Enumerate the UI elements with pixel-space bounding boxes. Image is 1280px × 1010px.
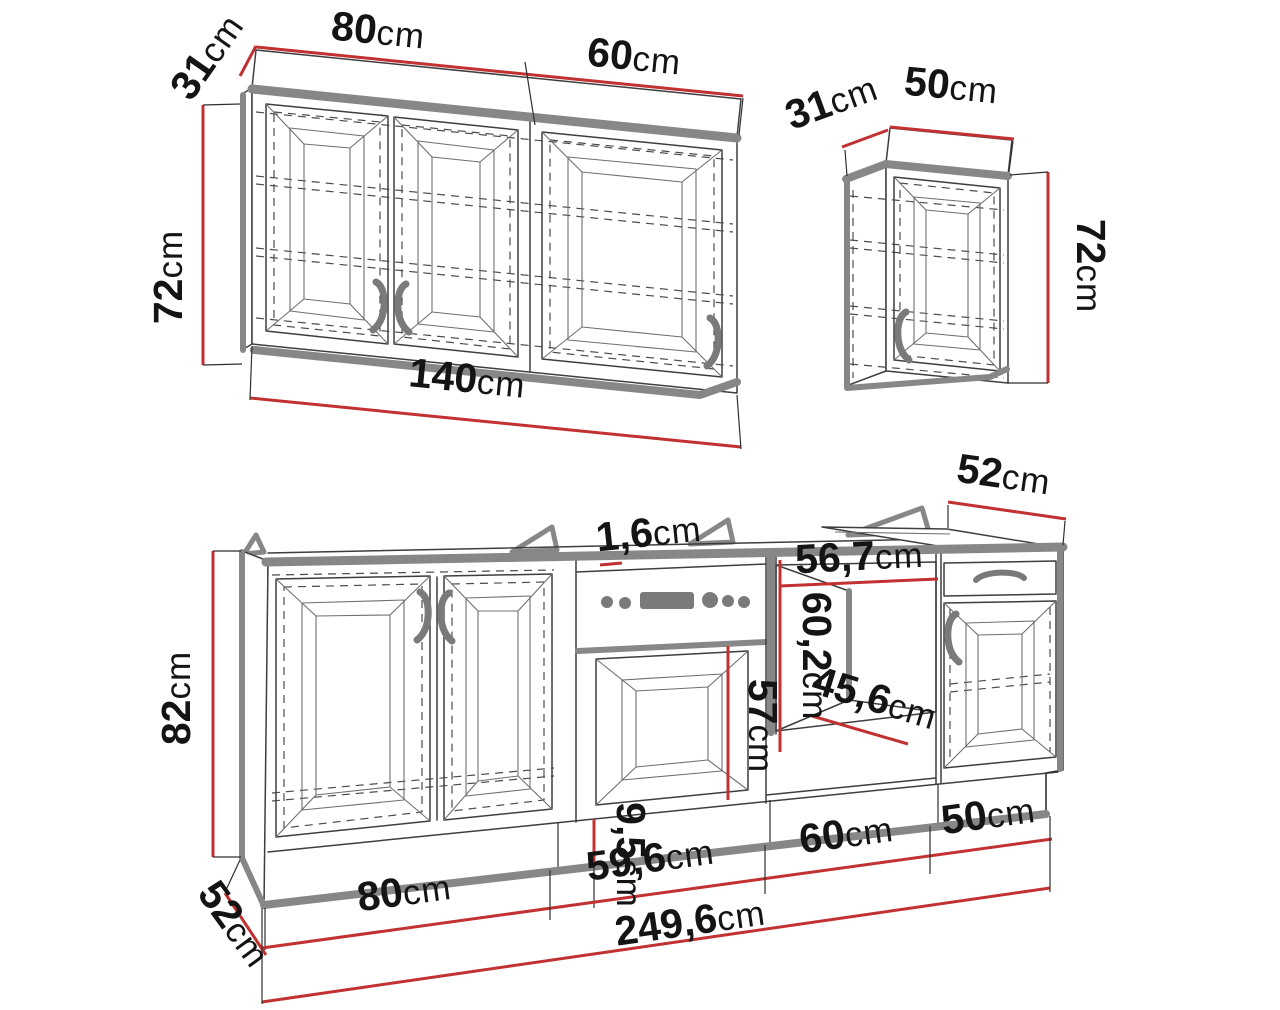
wall-cabinet-right: 31cm 50cm 72cm (779, 58, 1114, 388)
dim-line-depth (842, 130, 888, 147)
oven-display (640, 592, 694, 609)
oven-knob-icon (619, 597, 631, 609)
wall-cabinet-right-body (846, 128, 1012, 388)
dim-label-57: 57cm (740, 679, 786, 773)
dim-label-72: 72cm (1068, 219, 1114, 313)
oven-knob-icon (601, 596, 613, 608)
dim-label-72: 72cm (145, 230, 191, 324)
kitchen-dimension-diagram: 80cm 60cm 31cm 72cm 140cm (0, 0, 1280, 1010)
dim-tick-worktop (600, 563, 622, 565)
dim-label-80: 80cm (329, 3, 427, 58)
diagram-canvas: 80cm 60cm 31cm 72cm 140cm (0, 0, 1280, 1010)
dim-label-56-7: 56,7cm (794, 530, 925, 583)
dim-label-82: 82cm (153, 651, 199, 745)
oven-knob-icon (702, 592, 718, 608)
dim-line-total-width (250, 398, 741, 447)
dim-line-right-depth (948, 502, 1066, 519)
dim-label-60: 60cm (585, 29, 683, 84)
wall-cabinet-left-body (242, 50, 741, 395)
oven-knob-icon (722, 595, 734, 607)
plinth-notch (1046, 771, 1058, 813)
wall-cabinet-left: 80cm 60cm 31cm 72cm 140cm (145, 3, 743, 449)
dim-label-31: 31cm (779, 63, 883, 138)
dim-label-50: 50cm (902, 58, 1000, 113)
oven-knob-icon (738, 596, 750, 608)
base-cabinet-run: 82cm 52cm 1,6cm 56,7cm 60,2cm 45,6cm 57c… (153, 445, 1066, 1004)
dim-label-52-right: 52cm (954, 445, 1054, 504)
dim-label-31: 31cm (161, 4, 253, 108)
